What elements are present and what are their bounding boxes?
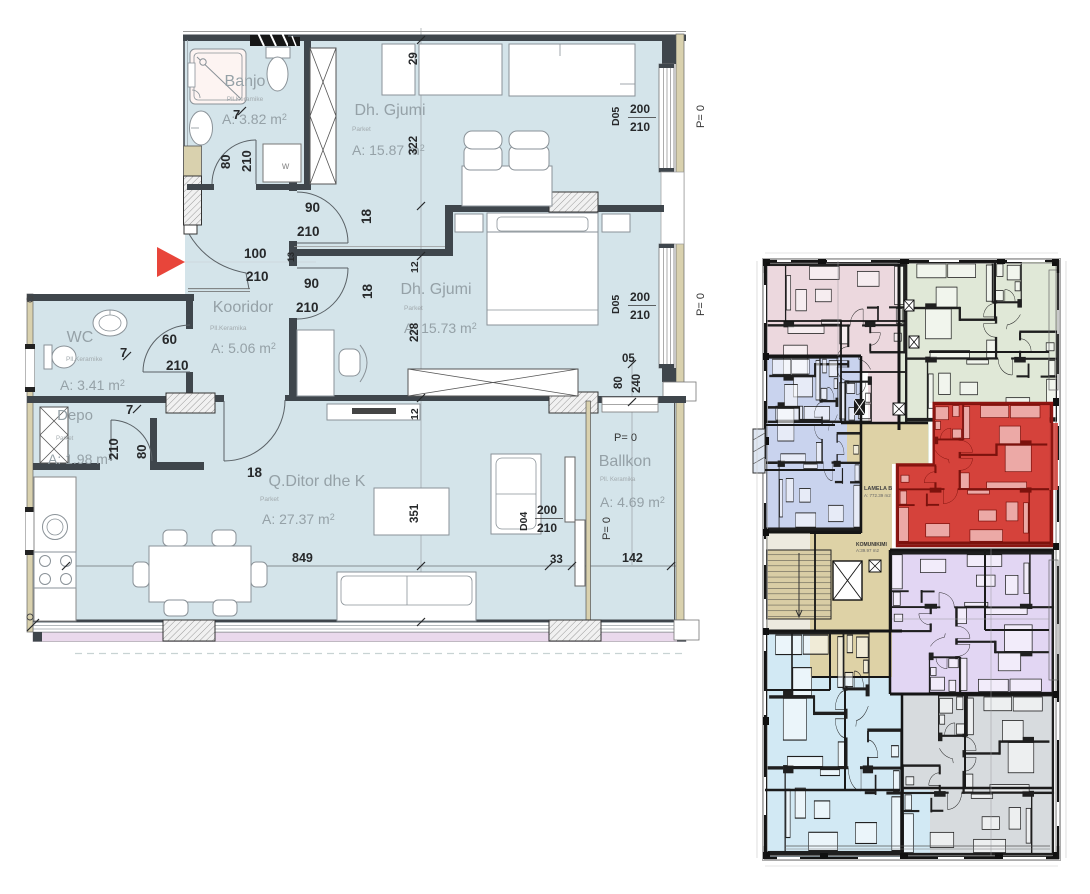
svg-text:Q.Ditor dhe K: Q.Ditor dhe K bbox=[269, 473, 366, 490]
svg-text:D04: D04 bbox=[518, 512, 530, 531]
svg-text:D05: D05 bbox=[610, 107, 622, 126]
svg-text:A: 3.82 m2: A: 3.82 m2 bbox=[222, 111, 287, 127]
svg-text:Ballkon: Ballkon bbox=[599, 453, 651, 470]
svg-text:351: 351 bbox=[409, 503, 421, 523]
svg-text:142: 142 bbox=[622, 551, 643, 565]
svg-text:210: 210 bbox=[296, 300, 319, 315]
svg-text:100: 100 bbox=[244, 246, 267, 261]
svg-text:33: 33 bbox=[550, 554, 563, 566]
svg-text:Parket: Parket bbox=[404, 305, 423, 312]
svg-text:A:39.97 m2: A:39.97 m2 bbox=[856, 548, 880, 553]
svg-text:200: 200 bbox=[630, 290, 650, 304]
svg-text:849: 849 bbox=[292, 551, 313, 565]
svg-text:80: 80 bbox=[134, 445, 149, 459]
svg-text:12: 12 bbox=[409, 408, 421, 420]
svg-text:80: 80 bbox=[613, 376, 625, 389]
svg-text:12: 12 bbox=[409, 261, 421, 273]
svg-text:210: 210 bbox=[630, 308, 650, 322]
svg-text:13: 13 bbox=[286, 252, 296, 262]
svg-text:Pll.Keramike: Pll.Keramike bbox=[66, 356, 103, 363]
svg-text:Parket: Parket bbox=[56, 436, 74, 442]
svg-text:Pll.Keramika: Pll.Keramika bbox=[210, 325, 247, 332]
svg-text:A: 4.69 m2: A: 4.69 m2 bbox=[600, 494, 665, 510]
svg-text:210: 210 bbox=[166, 358, 189, 373]
svg-text:Pll.Keramike: Pll.Keramike bbox=[227, 96, 264, 103]
svg-text:228: 228 bbox=[409, 322, 421, 342]
svg-text:LAMELA B: LAMELA B bbox=[864, 486, 892, 492]
svg-text:60: 60 bbox=[162, 332, 177, 347]
svg-text:Parket: Parket bbox=[352, 126, 371, 133]
svg-text:210: 210 bbox=[239, 150, 254, 172]
svg-text:P= 0: P= 0 bbox=[601, 517, 613, 540]
svg-text:D05: D05 bbox=[610, 295, 622, 314]
svg-text:7: 7 bbox=[120, 345, 127, 360]
svg-text:18: 18 bbox=[359, 208, 374, 224]
svg-text:WC: WC bbox=[67, 329, 94, 346]
svg-text:Dh. Gjumi: Dh. Gjumi bbox=[400, 281, 471, 298]
svg-text:P= 0: P= 0 bbox=[614, 432, 637, 444]
svg-text:90: 90 bbox=[305, 200, 320, 215]
svg-text:A: 772.39 m2: A: 772.39 m2 bbox=[864, 493, 891, 498]
svg-text:210: 210 bbox=[297, 224, 320, 239]
svg-text:Banjo: Banjo bbox=[225, 73, 266, 90]
svg-text:Pll. Keramika: Pll. Keramika bbox=[600, 477, 636, 483]
svg-text:210: 210 bbox=[537, 521, 557, 535]
svg-text:Kooridor: Kooridor bbox=[213, 299, 274, 316]
svg-text:200: 200 bbox=[537, 503, 557, 517]
svg-text:7: 7 bbox=[126, 402, 133, 417]
svg-text:80: 80 bbox=[218, 155, 233, 169]
svg-text:210: 210 bbox=[246, 269, 269, 284]
svg-text:A: 3.41 m2: A: 3.41 m2 bbox=[60, 377, 125, 393]
svg-text:A: 5.06 m2: A: 5.06 m2 bbox=[211, 340, 276, 356]
svg-text:A: 1.98 m2: A: 1.98 m2 bbox=[48, 451, 113, 467]
svg-text:A: 27.37 m2: A: 27.37 m2 bbox=[262, 511, 335, 527]
svg-text:18: 18 bbox=[247, 465, 263, 480]
svg-text:Depo: Depo bbox=[57, 407, 93, 424]
svg-text:Parket: Parket bbox=[260, 496, 279, 503]
svg-text:w: w bbox=[281, 161, 290, 172]
svg-text:29: 29 bbox=[408, 52, 420, 65]
svg-text:Dh. Gjumi: Dh. Gjumi bbox=[354, 102, 425, 119]
svg-text:210: 210 bbox=[630, 120, 650, 134]
svg-text:P= 0: P= 0 bbox=[695, 105, 707, 128]
svg-text:240: 240 bbox=[631, 374, 643, 393]
svg-text:P= 0: P= 0 bbox=[695, 293, 707, 316]
svg-text:18: 18 bbox=[360, 283, 375, 299]
svg-text:322: 322 bbox=[408, 136, 420, 155]
svg-text:210: 210 bbox=[106, 438, 121, 460]
svg-text:90: 90 bbox=[304, 276, 319, 291]
svg-text:200: 200 bbox=[630, 102, 650, 116]
